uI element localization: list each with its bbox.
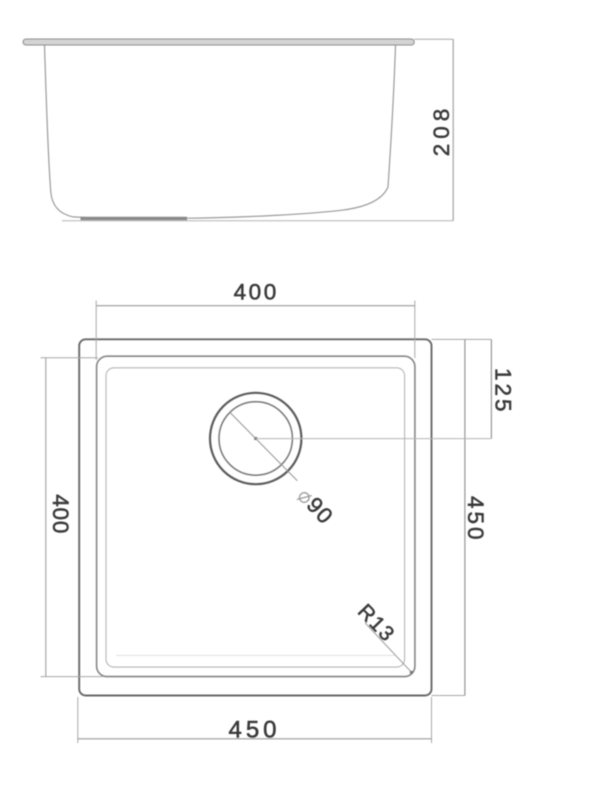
svg-text:R13: R13: [353, 600, 399, 647]
svg-text:125: 125: [490, 368, 515, 415]
svg-text:450: 450: [228, 716, 280, 743]
svg-text:400: 400: [48, 494, 73, 534]
svg-text:400: 400: [234, 280, 279, 305]
svg-text:450: 450: [463, 496, 488, 543]
svg-text:208: 208: [429, 104, 454, 157]
svg-text:90: 90: [302, 492, 339, 529]
